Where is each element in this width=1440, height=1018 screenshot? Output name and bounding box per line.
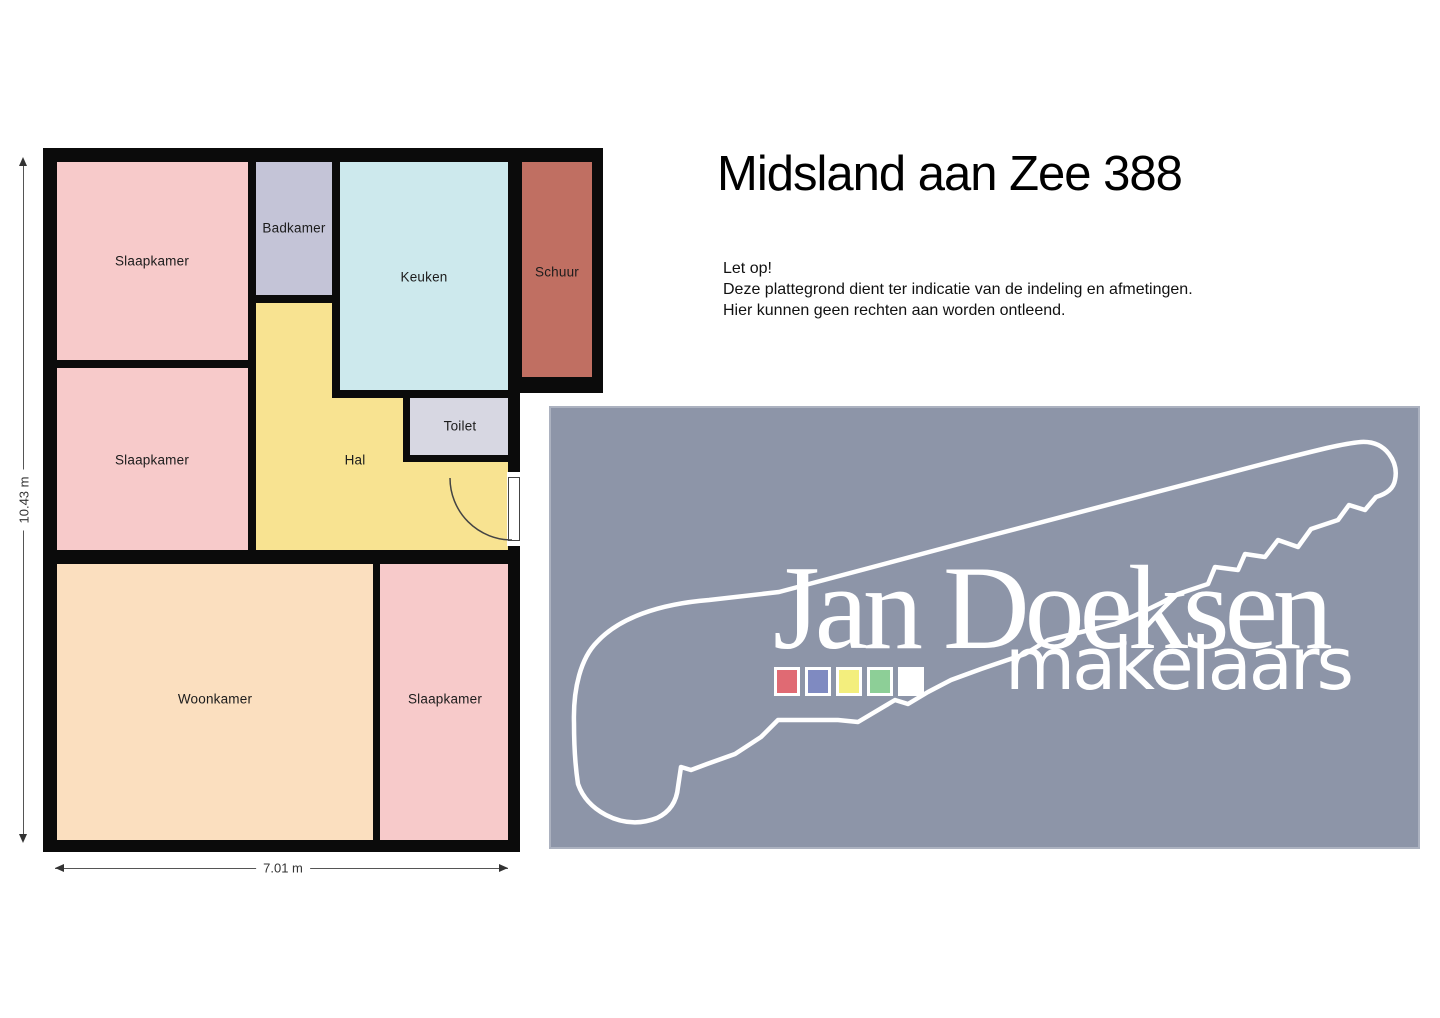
brand-subtitle: makelaars xyxy=(951,628,1351,700)
room-hal-middle xyxy=(332,398,403,550)
page: 10.43 m 7.01 m SlaapkamerBadkamerKeukenS… xyxy=(0,0,1440,1018)
height-dimension-label: 10.43 m xyxy=(16,470,33,531)
arrow-down-icon xyxy=(19,834,27,843)
arrow-left-icon xyxy=(55,864,64,872)
legend-square-green xyxy=(867,667,893,696)
room-hal-lower xyxy=(403,462,508,550)
logo-panel: Jan Doeksen makelaars xyxy=(549,406,1420,849)
label-badkamer: Badkamer xyxy=(262,221,325,236)
label-slaapkamer-2: Slaapkamer xyxy=(115,453,189,468)
label-schuur: Schuur xyxy=(535,265,579,280)
legend-square-red xyxy=(774,667,800,696)
arrow-right-icon xyxy=(499,864,508,872)
room-hal-upper xyxy=(256,303,332,550)
legend-square-yellow xyxy=(836,667,862,696)
disclaimer: Let op! Deze plattegrond dient ter indic… xyxy=(723,258,1193,321)
disclaimer-line-2: Hier kunnen geen rechten aan worden ontl… xyxy=(723,300,1193,321)
label-toilet: Toilet xyxy=(444,419,477,434)
label-woonkamer: Woonkamer xyxy=(178,692,252,707)
door-leaf xyxy=(508,477,520,541)
brand-color-squares xyxy=(774,667,924,696)
legend-square-blue xyxy=(805,667,831,696)
disclaimer-line-1: Deze plattegrond dient ter indicatie van… xyxy=(723,279,1193,300)
arrow-up-icon xyxy=(19,157,27,166)
label-slaapkamer-1: Slaapkamer xyxy=(115,254,189,269)
disclaimer-heading: Let op! xyxy=(723,258,1193,279)
label-hal: Hal xyxy=(345,453,366,468)
legend-square-white xyxy=(898,667,924,696)
label-keuken: Keuken xyxy=(401,270,448,285)
width-dimension-label: 7.01 m xyxy=(256,860,310,877)
floor-plan: SlaapkamerBadkamerKeukenSchuurSlaapkamer… xyxy=(43,148,603,852)
label-slaapkamer-3: Slaapkamer xyxy=(408,692,482,707)
page-title: Midsland aan Zee 388 xyxy=(717,146,1182,202)
